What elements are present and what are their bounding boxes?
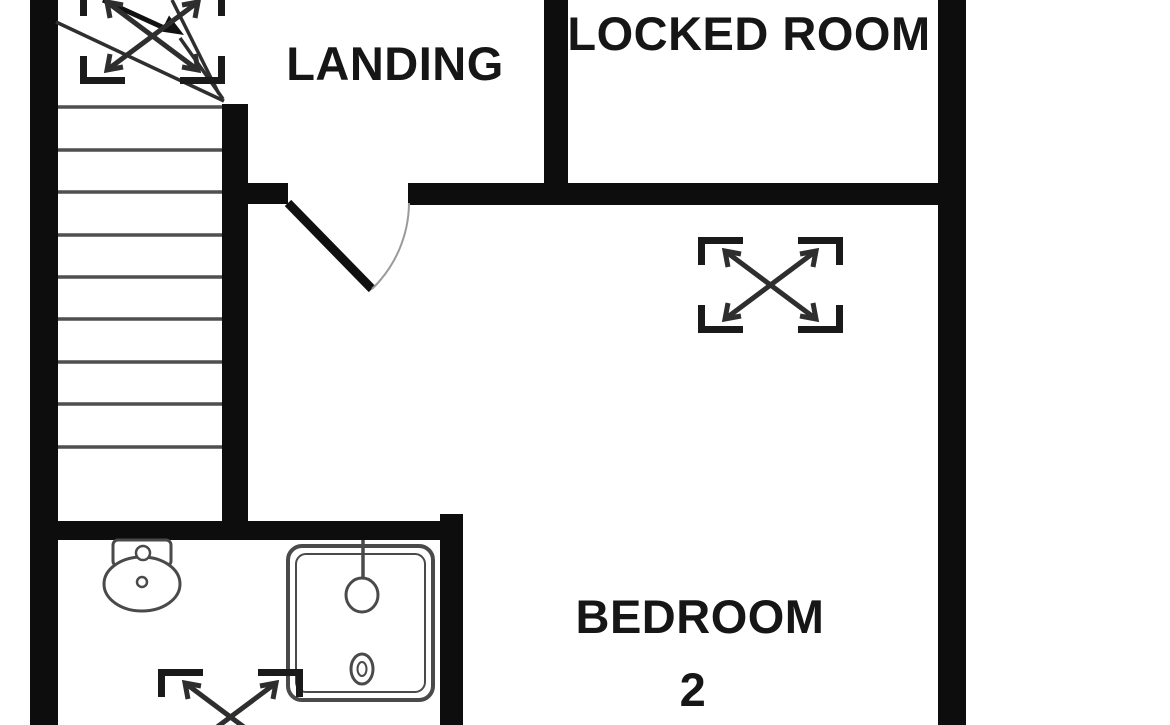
basin-tap-icon xyxy=(136,546,150,560)
room-label-bedroom: BEDROOM xyxy=(576,590,825,643)
room-label-locked-room: LOCKED ROOM xyxy=(567,7,930,60)
door-swing-arc xyxy=(372,203,409,289)
door xyxy=(288,203,409,289)
wall-bathroom-top xyxy=(30,521,463,540)
floor-plan: LANDING LOCKED ROOM BEDROOM 2 xyxy=(0,0,1170,725)
shower-enclosure xyxy=(288,540,433,700)
wall-locked-room-bottom xyxy=(568,183,938,205)
basin-bowl xyxy=(104,557,180,611)
wall-door-jamb-left xyxy=(240,183,288,204)
shower-tray xyxy=(288,546,433,700)
wall-stairs-right xyxy=(222,104,248,540)
wall-locked-room-left xyxy=(544,0,568,205)
room-label-bedroom-number: 2 xyxy=(680,663,707,716)
restricted-area-icon xyxy=(702,241,840,330)
floor-plan-canvas: LANDING LOCKED ROOM BEDROOM 2 xyxy=(0,0,1170,725)
restricted-area-icon xyxy=(162,673,300,725)
room-label-landing: LANDING xyxy=(286,37,504,90)
wall-right-exterior xyxy=(938,0,966,725)
shower-head-icon xyxy=(346,578,378,612)
wall-landing-bedroom xyxy=(408,183,545,205)
door-leaf xyxy=(288,203,372,289)
wall-bathroom-right xyxy=(440,514,463,725)
wall-left-exterior xyxy=(30,0,58,725)
wash-basin xyxy=(104,540,180,611)
